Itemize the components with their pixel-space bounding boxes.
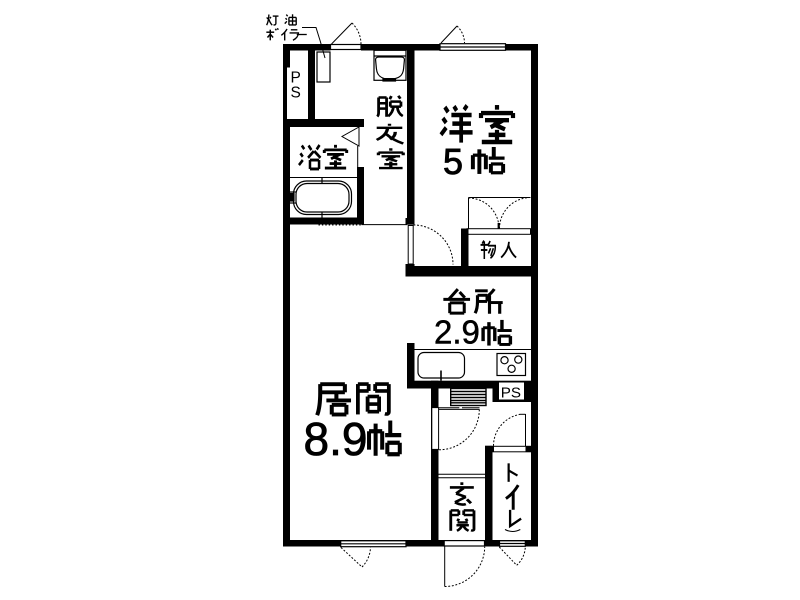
svg-text:2.9: 2.9 [434,314,480,351]
svg-text:8.9: 8.9 [304,413,368,465]
svg-text:PS: PS [501,384,521,401]
svg-text:S: S [291,84,301,101]
svg-text:5: 5 [443,141,463,182]
